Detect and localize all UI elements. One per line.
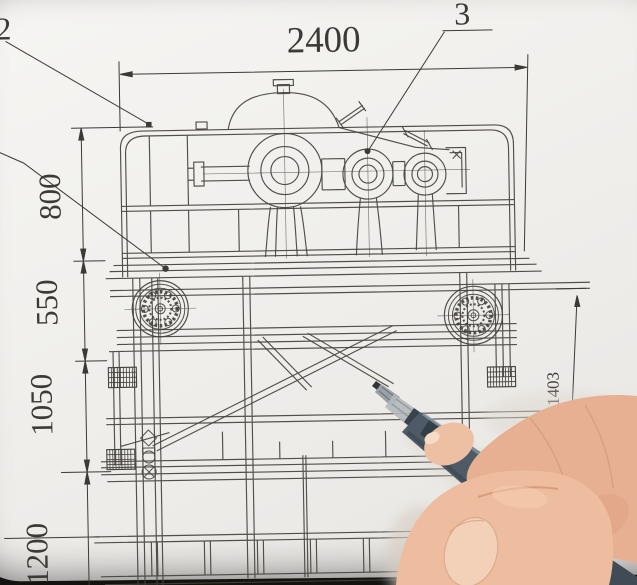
technical-drawing-canvas: 2400 800 550 1050 1200 1403 2 3 [0,0,637,585]
dim-800: 800 [32,173,68,220]
spring-damper-left-upper [108,367,136,387]
photo-of-engineering-drawing: 2400 800 550 1050 1200 1403 2 3 [0,0,637,585]
part-label-3: 3 [454,0,471,32]
dim-2400: 2400 [286,19,361,61]
dim-1200: 1200 [19,523,55,585]
dim-1050: 1050 [23,374,59,437]
gearbox-front-view [186,76,467,258]
dim-550: 550 [29,279,65,326]
part-label-2: 2 [0,10,12,46]
spring-damper-right [487,367,515,387]
